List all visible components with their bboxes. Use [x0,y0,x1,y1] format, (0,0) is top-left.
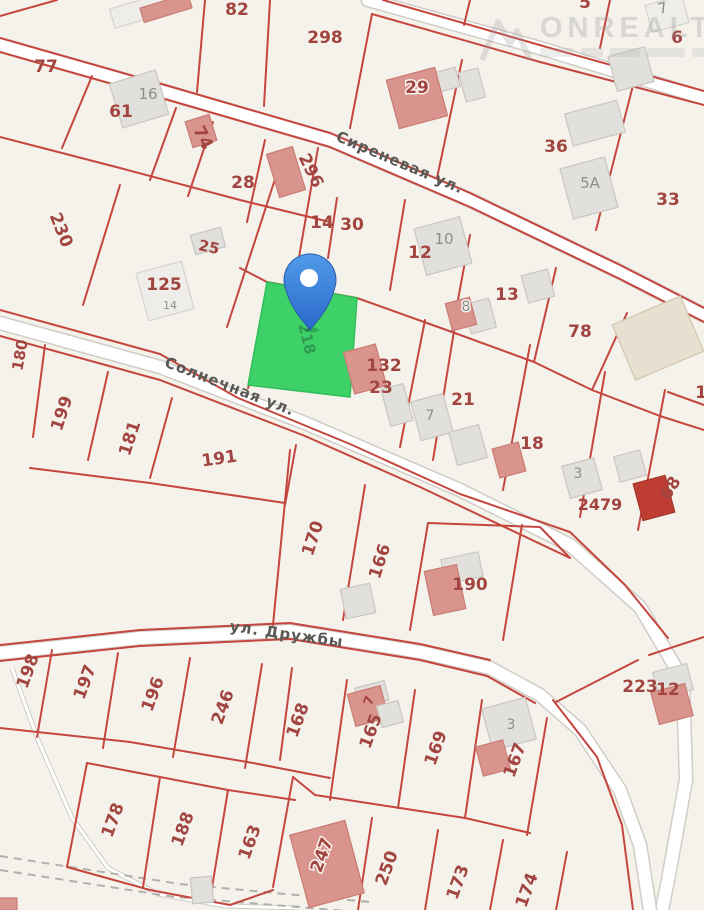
parcel-label-13: 13 [495,285,519,305]
parcel-label-61: 61 [109,102,133,122]
parcel-label-223: 223 [622,677,658,697]
building-label-3: 3 [574,466,583,482]
parcel-label-21: 21 [451,390,475,410]
parcel-label-6: 6 [671,28,683,48]
building-label-8: 8 [462,299,471,315]
parcel-label-1: 1 [695,383,704,403]
parcel-label-12: 12 [408,243,432,263]
pin-hole [300,269,318,287]
parcel-label-12: 12 [656,680,680,700]
cadastral-map[interactable]: 21882298776116742829629365А3356723025125… [0,0,704,910]
parcel-label-36: 36 [544,137,568,157]
map-canvas[interactable]: 21882298776116742829629365А3356723025125… [0,0,704,910]
parcel-label-29: 29 [405,78,429,98]
parcel-label-33: 33 [656,190,680,210]
parcel-label-23: 23 [369,378,393,398]
parcel-label-298: 298 [307,28,343,48]
building-footprint-gray [190,876,213,904]
parcel-label-5: 5 [579,0,591,13]
building-label-7: 7 [426,408,435,424]
building-footprint-gray [340,583,376,619]
building-label-5А: 5А [580,174,601,192]
building-label-3: 3 [507,717,516,733]
parcel-label-190: 190 [452,575,488,595]
building-label-10: 10 [434,230,453,248]
building-label-16: 16 [138,85,157,103]
parcel-label-2479: 2479 [578,495,623,514]
parcel-label-14: 14 [310,213,334,233]
parcel-label-30: 30 [340,215,364,235]
parcel-label-125: 125 [146,275,182,295]
parcel-label-28: 28 [231,173,255,193]
building-label-14: 14 [163,299,177,312]
parcel-label-77: 77 [34,57,58,77]
parcel-label-18: 18 [520,434,544,454]
building-footprint-red [0,898,17,910]
parcel-label-78: 78 [568,322,592,342]
parcel-label-132: 132 [366,356,402,376]
parcel-label-82: 82 [225,0,249,20]
